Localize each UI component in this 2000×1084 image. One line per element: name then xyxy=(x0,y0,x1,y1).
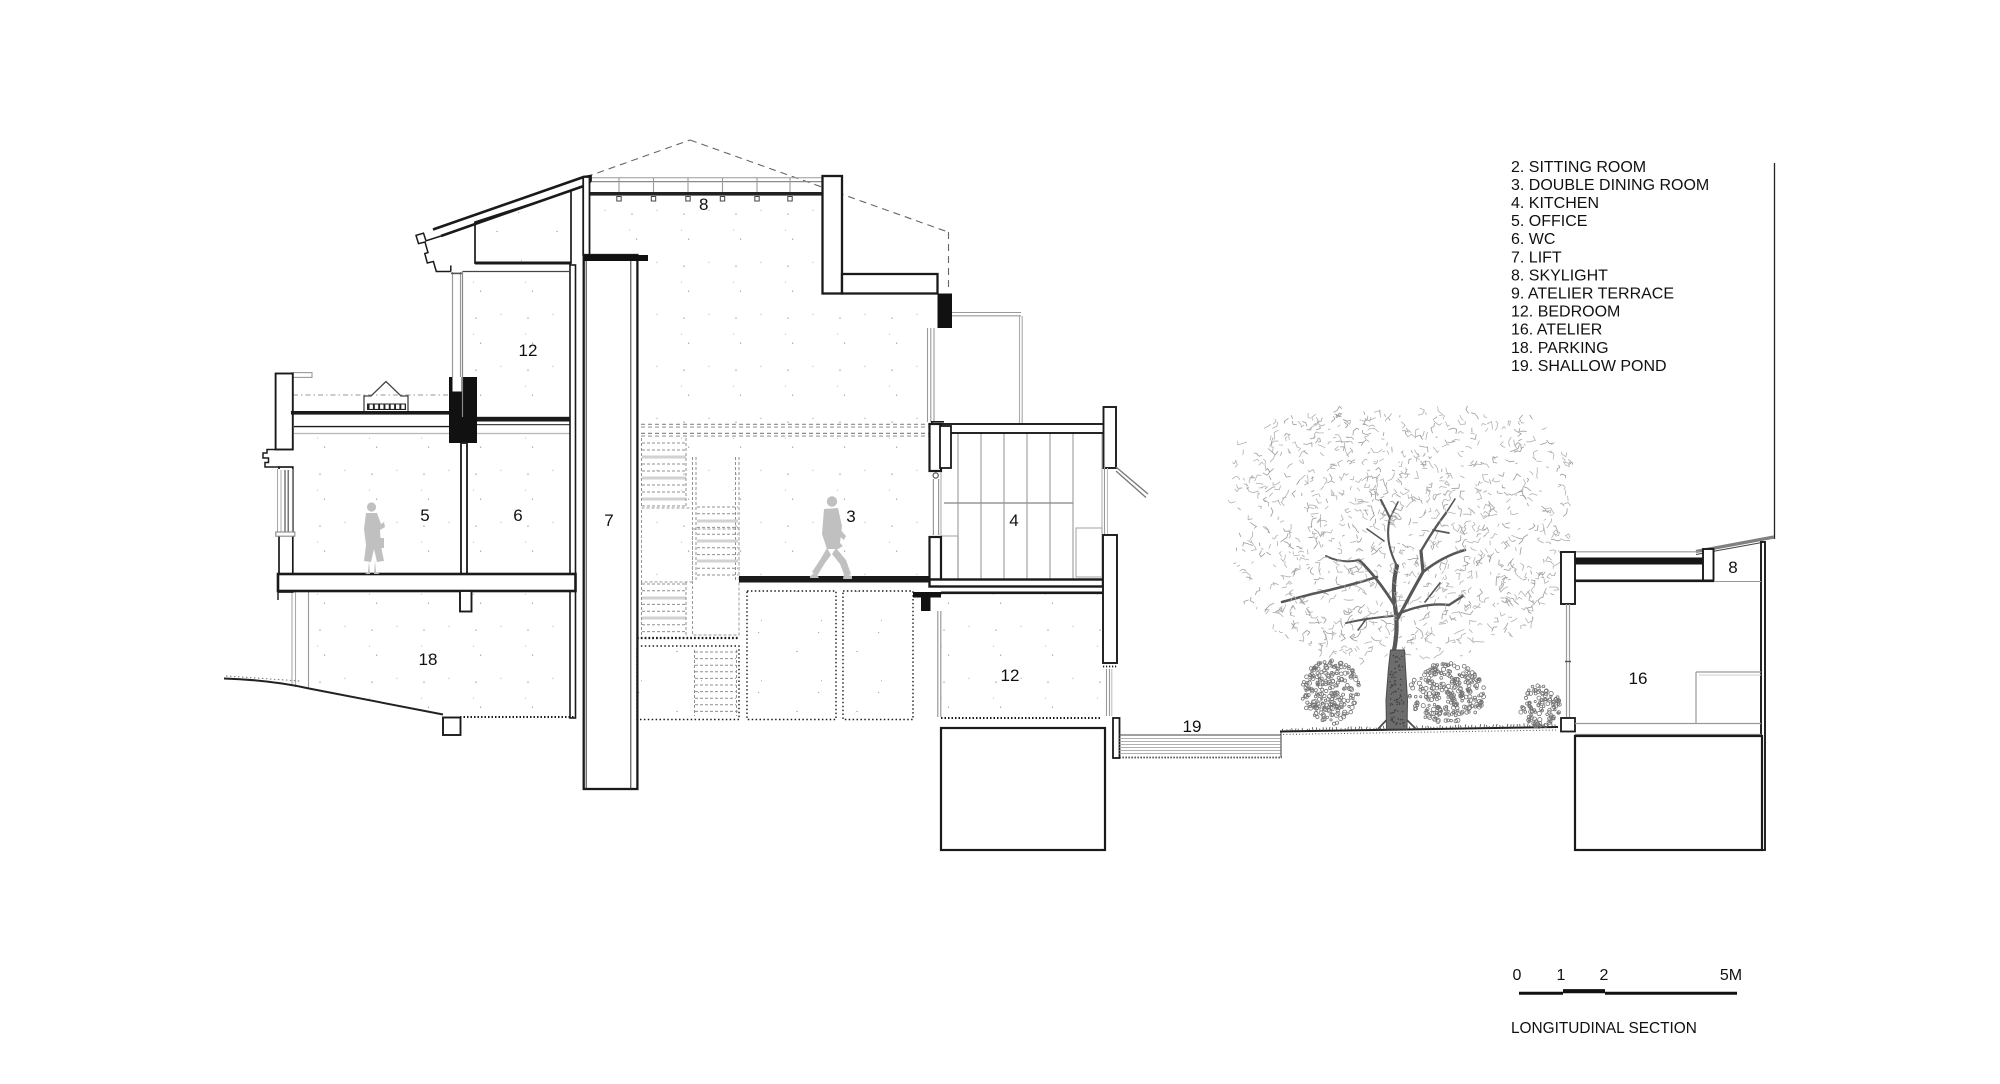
svg-text:5: 5 xyxy=(420,506,429,525)
svg-text:9. ATELIER TERRACE: 9. ATELIER TERRACE xyxy=(1511,286,1674,303)
svg-text:12. BEDROOM: 12. BEDROOM xyxy=(1511,304,1620,321)
svg-text:7. LIFT: 7. LIFT xyxy=(1511,249,1562,266)
svg-text:3. DOUBLE DINING ROOM: 3. DOUBLE DINING ROOM xyxy=(1511,177,1709,194)
svg-text:8: 8 xyxy=(699,195,708,214)
svg-text:8. SKYLIGHT: 8. SKYLIGHT xyxy=(1511,267,1608,284)
svg-text:19. SHALLOW POND: 19. SHALLOW POND xyxy=(1511,358,1667,375)
svg-text:2: 2 xyxy=(1600,967,1609,984)
svg-text:18: 18 xyxy=(419,650,438,669)
svg-text:3: 3 xyxy=(846,507,855,526)
svg-text:16: 16 xyxy=(1629,669,1648,688)
svg-text:5. OFFICE: 5. OFFICE xyxy=(1511,213,1587,230)
svg-text:12: 12 xyxy=(1001,666,1020,685)
svg-text:1: 1 xyxy=(1557,967,1566,984)
svg-text:12: 12 xyxy=(519,341,538,360)
svg-text:6: 6 xyxy=(513,506,522,525)
svg-text:0: 0 xyxy=(1513,967,1522,984)
svg-text:8: 8 xyxy=(1728,558,1737,577)
svg-text:5M: 5M xyxy=(1720,967,1742,984)
svg-text:4: 4 xyxy=(1009,511,1018,530)
svg-text:LONGITUDINAL SECTION: LONGITUDINAL SECTION xyxy=(1511,1020,1697,1037)
svg-text:7: 7 xyxy=(604,511,613,530)
svg-text:2. SITTING ROOM: 2. SITTING ROOM xyxy=(1511,159,1646,176)
svg-text:6. WC: 6. WC xyxy=(1511,231,1555,248)
svg-text:4. KITCHEN: 4. KITCHEN xyxy=(1511,195,1599,212)
svg-text:16. ATELIER: 16. ATELIER xyxy=(1511,322,1602,339)
svg-text:19: 19 xyxy=(1183,717,1202,736)
svg-text:18. PARKING: 18. PARKING xyxy=(1511,340,1609,357)
